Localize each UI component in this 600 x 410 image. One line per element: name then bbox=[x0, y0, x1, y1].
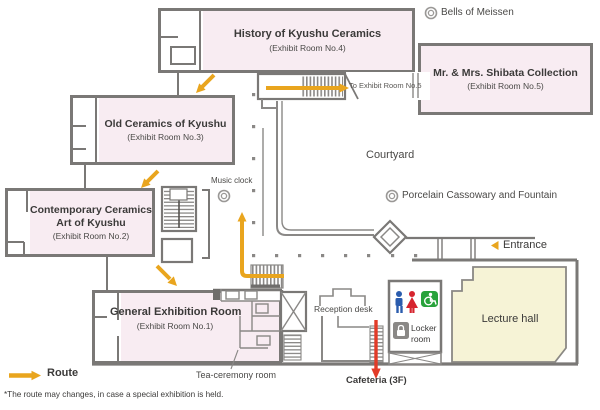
room-history-name: History of Kyushu Ceramics bbox=[234, 28, 381, 41]
stairs-route-icon bbox=[251, 265, 283, 288]
accessible-restroom-icon bbox=[421, 291, 438, 307]
room-history-sub: (Exhibit Room No.4) bbox=[269, 43, 346, 53]
bells-icon bbox=[426, 8, 437, 19]
entrance-arrow-icon bbox=[491, 241, 499, 250]
route-legend-label: Route bbox=[47, 367, 78, 379]
route-arrow-up-corridor bbox=[242, 221, 284, 276]
room-shibata: Mr. & Mrs. Shibata Collection (Exhibit R… bbox=[418, 43, 593, 115]
music-clock-icon bbox=[219, 191, 230, 202]
route-arrow-old-to-contemporary bbox=[147, 171, 158, 182]
locker-icon bbox=[393, 322, 409, 339]
bells-label: Bells of Meissen bbox=[441, 7, 514, 18]
to-room5-label: To Exhibit Room No.5 bbox=[349, 81, 422, 90]
stairs-small-icon bbox=[284, 335, 301, 360]
stairs-room2-icon bbox=[162, 187, 196, 231]
fountain-label: Porcelain Cassowary and Fountain bbox=[402, 190, 557, 201]
tea-room-label: Tea-ceremony room bbox=[196, 370, 276, 380]
stairs-to-room5-icon bbox=[301, 77, 343, 97]
locker-label: Locker room bbox=[411, 323, 443, 346]
room-contemporary-name: Contemporary Ceramics bbox=[30, 204, 152, 217]
room-contemporary-sub: (Exhibit Room No.2) bbox=[53, 231, 130, 241]
route-arrow-contemporary-to-general bbox=[157, 266, 170, 279]
museum-floor-map: History of Kyushu Ceramics (Exhibit Room… bbox=[0, 0, 600, 410]
route-arrow-history-to-old bbox=[201, 75, 214, 88]
room-contemporary: Contemporary Ceramics Art of Kyushu (Exh… bbox=[5, 188, 155, 257]
route-note: *The route may changes, in case a specia… bbox=[4, 390, 223, 399]
courtyard-label: Courtyard bbox=[366, 149, 414, 161]
cafeteria-arrow bbox=[371, 320, 380, 379]
room-contemporary-name2: Art of Kyushu bbox=[56, 217, 125, 230]
room-shibata-name: Mr. & Mrs. Shibata Collection bbox=[433, 67, 578, 80]
room-shibata-sub: (Exhibit Room No.5) bbox=[467, 81, 544, 91]
lecture-label: Lecture hall bbox=[468, 313, 552, 325]
elevator-box-icon bbox=[281, 292, 306, 331]
entrance-label: Entrance bbox=[503, 239, 547, 251]
stairs-cafeteria-icon bbox=[370, 326, 383, 362]
room-general-label: General Exhibition Room (Exhibit Room No… bbox=[110, 306, 240, 331]
room-history: History of Kyushu Ceramics (Exhibit Room… bbox=[158, 8, 415, 73]
reception-desk-shape bbox=[320, 289, 370, 361]
courtyard-walls bbox=[262, 99, 374, 236]
room-old-sub: (Exhibit Room No.3) bbox=[127, 132, 204, 142]
womens-restroom-icon bbox=[406, 291, 418, 313]
room-old-ceramics: Old Ceramics of Kyushu (Exhibit Room No.… bbox=[70, 95, 235, 165]
revolving-door-icon bbox=[374, 221, 406, 253]
mens-restroom-icon bbox=[396, 291, 403, 313]
room-general-name: General Exhibition Room bbox=[110, 306, 240, 319]
cafeteria-label: Cafeteria (3F) bbox=[346, 375, 407, 386]
room-general-sub: (Exhibit Room No.1) bbox=[110, 321, 240, 331]
fountain-icon bbox=[387, 191, 398, 202]
music-clock-label: Music clock bbox=[211, 176, 252, 185]
column-dots bbox=[252, 93, 417, 257]
reception-label: Reception desk bbox=[314, 304, 373, 314]
room-old-name: Old Ceramics of Kyushu bbox=[105, 118, 227, 131]
